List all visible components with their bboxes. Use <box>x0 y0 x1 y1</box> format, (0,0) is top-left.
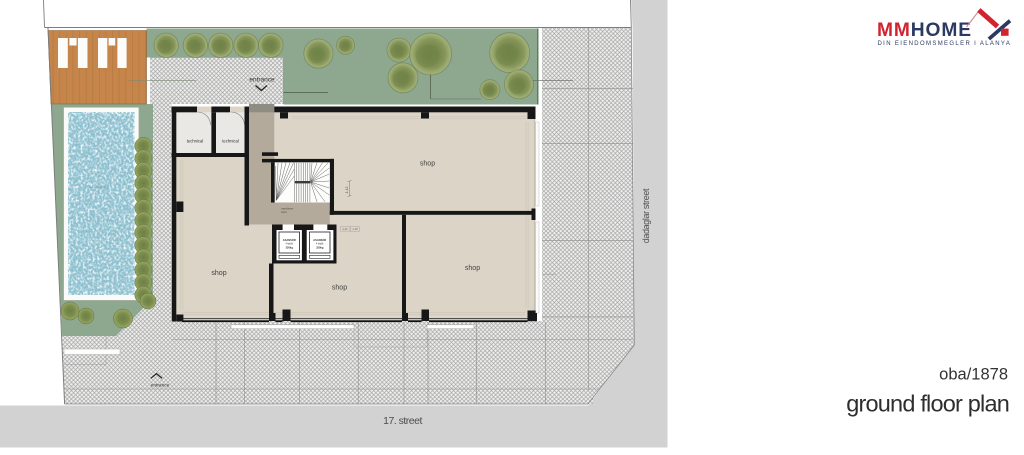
svg-text:holü: holü <box>281 210 287 214</box>
svg-text:4 kişilik: 4 kişilik <box>286 244 294 246</box>
svg-text:4 kişilik: 4 kişilik <box>316 244 324 246</box>
svg-text:320kg: 320kg <box>286 246 294 250</box>
svg-text:1,28: 1,28 <box>352 227 358 231</box>
svg-text:shop: shop <box>332 284 347 291</box>
svg-text:shop: shop <box>465 265 480 272</box>
svg-text:ground floor plan: ground floor plan <box>846 391 1009 417</box>
svg-text:17. street: 17. street <box>383 415 422 427</box>
svg-text:320kg: 320kg <box>316 246 324 250</box>
svg-text:technical: technical <box>222 139 239 144</box>
svg-text:entrance: entrance <box>151 383 170 389</box>
svg-text:dadaglar street: dadaglar street <box>641 188 651 243</box>
svg-text:DIN EIENDOMSMEGLER I ALANYA: DIN EIENDOMSMEGLER I ALANYA <box>878 41 1012 47</box>
svg-text:1,42: 1,42 <box>345 187 349 194</box>
svg-text:swimming pool: swimming pool <box>90 185 109 189</box>
svg-text:MMHOME: MMHOME <box>877 20 972 41</box>
svg-text:shop: shop <box>211 270 226 277</box>
svg-text:entrance: entrance <box>249 77 275 84</box>
svg-text:oba/1878: oba/1878 <box>939 366 1008 384</box>
svg-text:technical: technical <box>187 139 204 144</box>
svg-text:2,26: 2,26 <box>342 227 348 231</box>
svg-text:shop: shop <box>420 161 435 168</box>
